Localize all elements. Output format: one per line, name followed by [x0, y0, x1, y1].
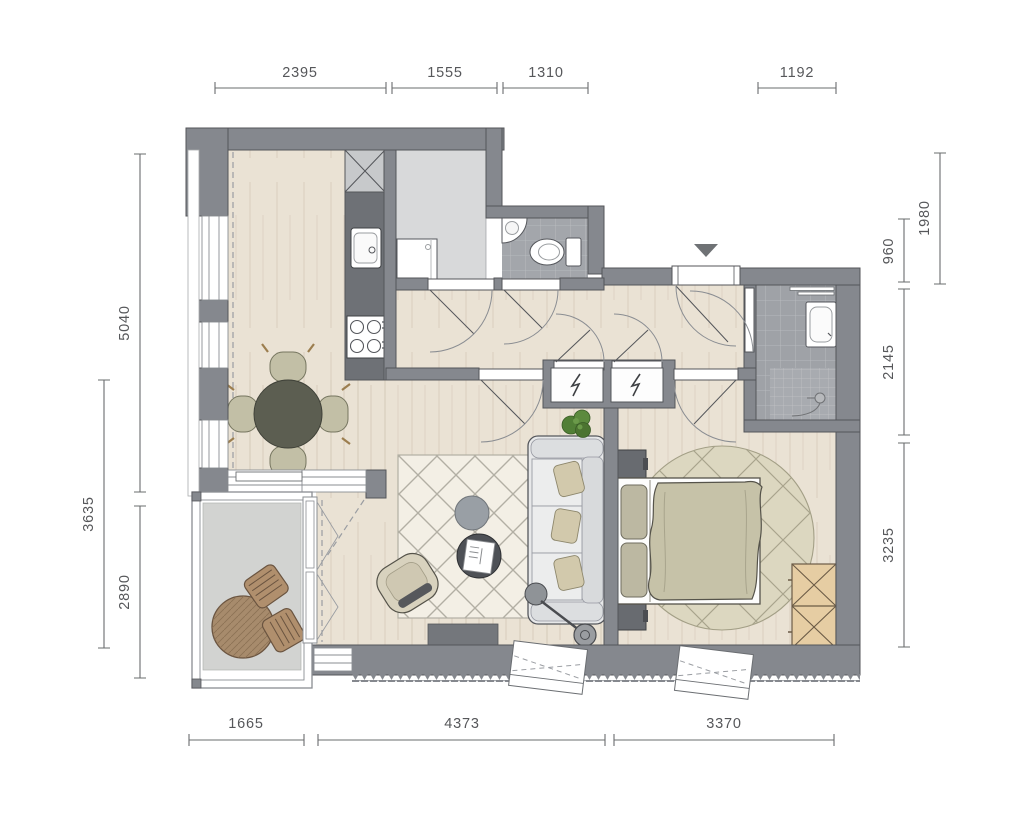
dim-top-3: 1310 [528, 65, 563, 81]
living-room-bottom-window [509, 641, 588, 695]
dim-bottom-3: 3370 [706, 716, 741, 732]
dining-balcony-window [228, 470, 366, 492]
duvet [649, 482, 762, 600]
left-wall-windows [202, 216, 228, 468]
dim-top-1: 2395 [282, 65, 317, 81]
shower-drain [815, 393, 825, 403]
tv-console [428, 624, 498, 646]
dim-right-3: 2145 [881, 344, 897, 379]
washbasin [806, 302, 836, 347]
dim-right-4: 3235 [881, 527, 897, 562]
coffee-table-large [457, 534, 501, 578]
kitchen-counter [345, 150, 385, 380]
dim-left-3: 2890 [117, 574, 133, 609]
dim-left-2: 3635 [81, 496, 97, 531]
shower-area [770, 368, 836, 422]
toilet [530, 238, 581, 266]
balcony [192, 492, 312, 688]
floor-plan-page: 2395 1555 1310 1192 1665 4373 3370 5040 … [0, 0, 1024, 826]
kitchen-shaft [345, 150, 385, 192]
bedroom-bottom-window [674, 646, 753, 700]
dim-right-1: 1980 [917, 200, 933, 235]
wardrobe [788, 564, 836, 648]
dim-bottom-2: 4373 [444, 716, 479, 732]
pillow [621, 485, 647, 539]
washing-machine [397, 239, 437, 281]
dim-top-2: 1555 [427, 65, 462, 81]
entrance-marker-icon [694, 244, 718, 257]
bed [616, 478, 762, 604]
left-facade-line [188, 150, 199, 496]
stove [347, 316, 385, 358]
dim-left-1: 5040 [117, 305, 133, 340]
dim-bottom-1: 1665 [228, 716, 263, 732]
coffee-table-small [455, 496, 489, 530]
pillow [621, 543, 647, 597]
floor-plan-drawing: 2395 1555 1310 1192 1665 4373 3370 5040 … [0, 0, 1024, 826]
dim-right-2: 960 [881, 238, 897, 265]
bottom-left-window [314, 648, 352, 671]
dim-top-4: 1192 [780, 65, 814, 81]
kitchen-sink [351, 228, 381, 268]
bottom-wall-sawtooth [352, 674, 860, 682]
dining-table [254, 380, 322, 448]
